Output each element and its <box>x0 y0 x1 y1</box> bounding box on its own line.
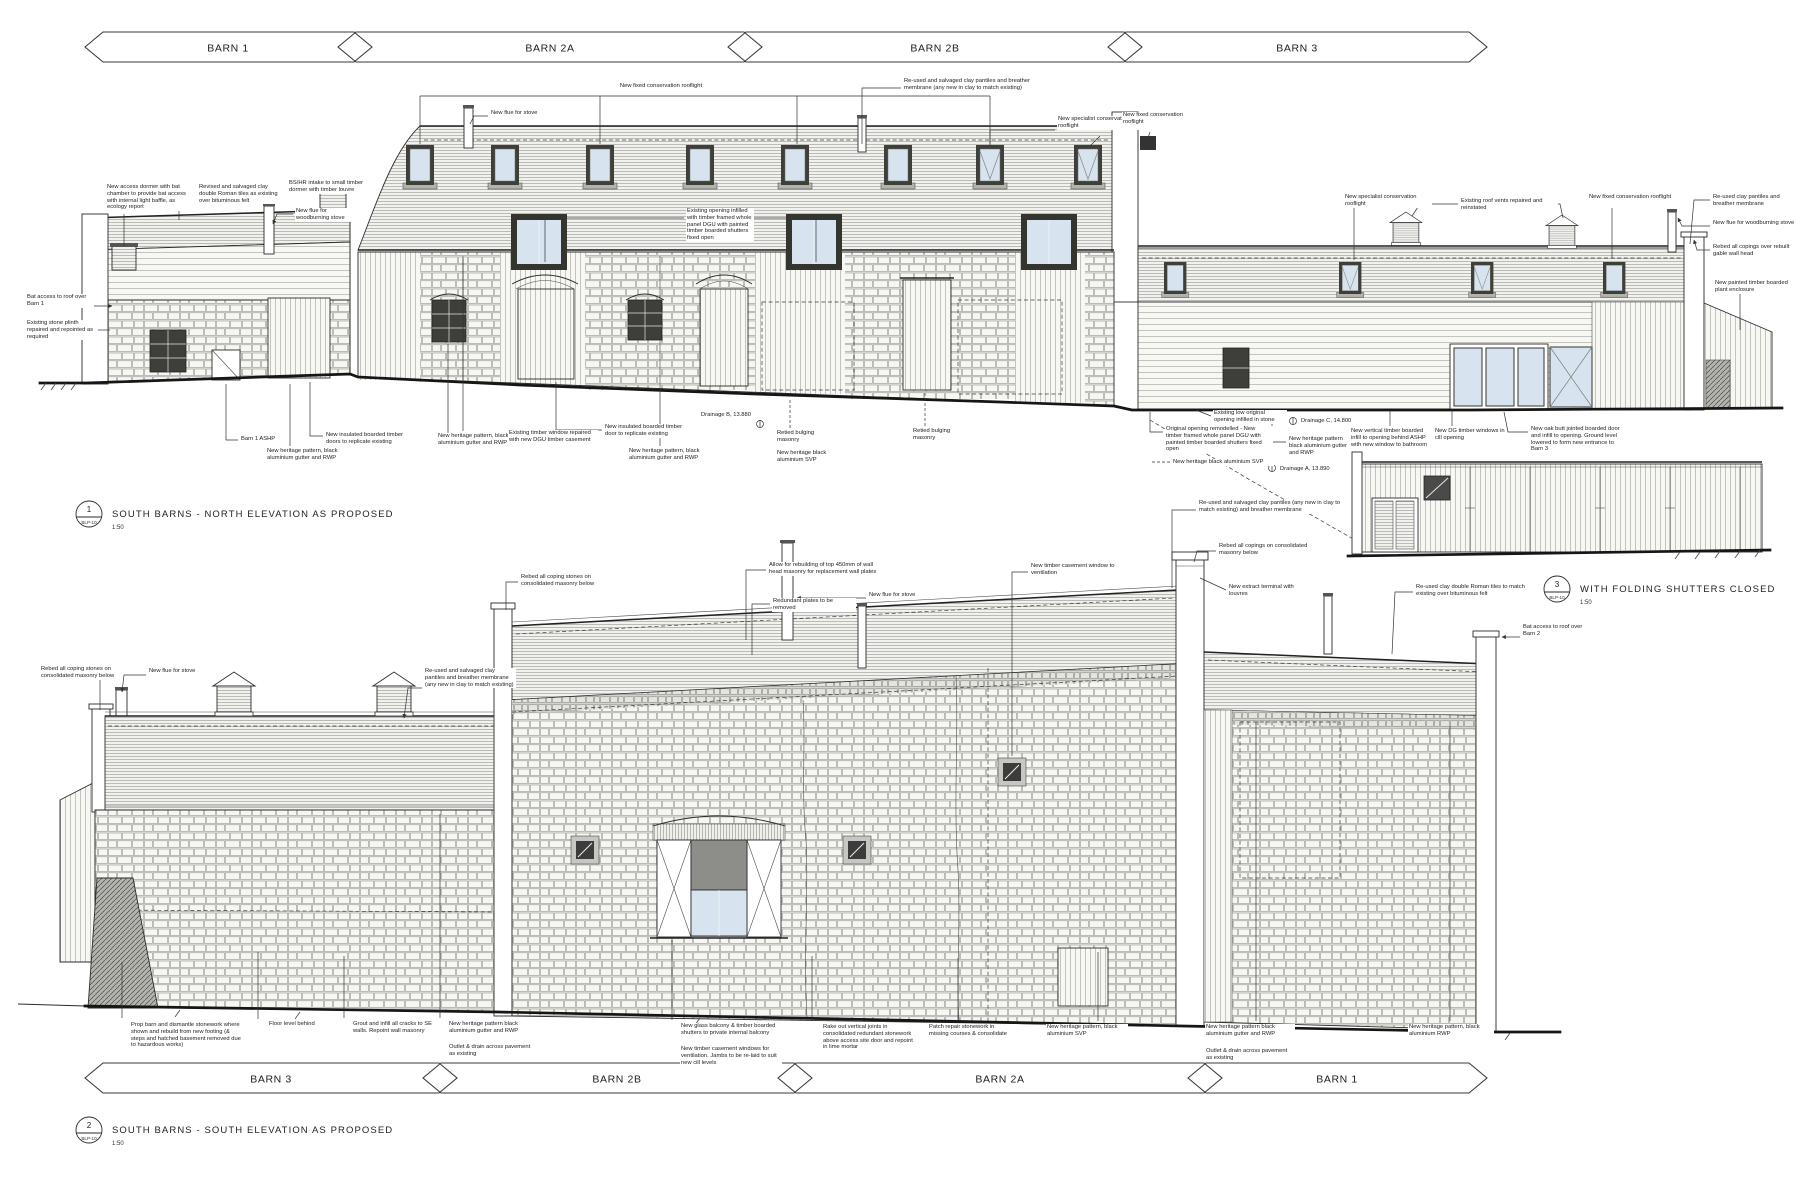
annotation-label: Re-used and salvaged clay pantiles and b… <box>424 668 516 688</box>
annotation-label: New heritage black aluminium SVP <box>776 450 848 464</box>
annotation-label: New heritage pattern, black aluminium gu… <box>266 448 362 462</box>
annotation-label: New DG timber windows in cill opening <box>1434 428 1506 442</box>
annotation-label: Rebed all coping stones on consolidated … <box>520 574 618 588</box>
annotation-label: New insulated boarded timber doors to re… <box>325 432 411 446</box>
annotation-label: New oak butt jointed boarded door and in… <box>1530 426 1628 453</box>
annotation-label: BS/HR intake to small timber dormer with… <box>288 180 370 194</box>
annotation-label: Prop barn and dismantle stonework where … <box>130 1022 244 1049</box>
annotation-label: New fixed conservation rooflight <box>1122 112 1202 126</box>
annotation-label: New heritage pattern, black aluminium RW… <box>1408 1024 1494 1038</box>
annotation-label: Rake out vertical joints in consolidated… <box>822 1024 916 1051</box>
annotation-label: New heritage pattern black aluminium gut… <box>448 1021 538 1035</box>
annotation-label: Re-used clay pantiles and breather membr… <box>1712 194 1796 208</box>
annotation-label: Bat access to roof over Barn 1 <box>26 294 94 308</box>
annotation-label: New heritage pattern black aluminium gut… <box>1288 436 1350 456</box>
annotation-label: Rebed all copings on consolidated masonr… <box>1218 543 1315 557</box>
annotation-label: Re-used and salvaged clay pantiles and b… <box>903 78 1060 92</box>
annotation-label: New painted timber boarded plant enclosu… <box>1714 280 1798 294</box>
annotation-label: Rebed all coping stones on consolidated … <box>40 666 116 680</box>
annotation-label: Existing low original opening infilled i… <box>1213 410 1287 424</box>
annotation-label: Bat access to roof over Barn 2 <box>1522 624 1588 638</box>
annotation-label: Re-used clay double Roman tiles to match… <box>1415 584 1529 598</box>
annotation-label: Outlet & drain across pavement as existi… <box>448 1044 538 1058</box>
annotation-label: New vertical timber boarded infill to op… <box>1350 428 1432 448</box>
annotation-label: Existing opening infilled with timber fr… <box>686 208 754 242</box>
annotation-label: New flue for stove <box>490 110 548 117</box>
annotation-label: New heritage black aluminium SVP <box>1172 459 1274 466</box>
annotation-label: New flue for woodburning stove <box>1712 220 1796 227</box>
annotation-label: Allow for rebuilding of top 450mm of wal… <box>768 562 882 576</box>
annotation-label: Re-used and salvaged clay pantiles (any … <box>1198 500 1350 514</box>
annotation-label: Drainage A, 13.890 <box>1279 466 1351 473</box>
annotation-layer: Bat access to roof over Barn 1New access… <box>0 0 1800 1199</box>
annotation-label: New insulated boarded timber door to rep… <box>604 424 692 438</box>
annotation-label: Retied bulging masonry <box>776 430 834 444</box>
annotation-label: New fixed conservation rooflight <box>1588 194 1674 201</box>
annotation-label: Rebed all copings over rebuilt gable wal… <box>1712 244 1796 258</box>
annotation-label: Drainage B, 13.880 <box>700 412 772 419</box>
annotation-label: New fixed conservation rooflight <box>565 83 757 90</box>
annotation-label: Redundant plates to be removed <box>772 598 856 612</box>
annotation-label: Existing stone plinth repaired and repoi… <box>26 320 98 340</box>
annotation-label: Barn 1 ASHP <box>240 436 288 443</box>
annotation-label: New timber casement window to ventilatio… <box>1030 563 1124 577</box>
annotation-label: Outlet & drain across pavement as existi… <box>1205 1048 1295 1062</box>
annotation-label: New flue for woodburning stove <box>295 208 359 222</box>
annotation-label: New heritage pattern, black aluminium SV… <box>1046 1024 1128 1038</box>
annotation-label: Retied bulging masonry <box>912 428 970 442</box>
annotation-label: New specialist conservation rooflight <box>1344 194 1432 208</box>
annotation-label: Grout and infill all cracks to SE walls.… <box>352 1021 440 1035</box>
annotation-label: New timber casement windows for ventilat… <box>680 1046 782 1066</box>
annotation-label: New flue for stove <box>868 592 928 599</box>
drawing-sheet: BARN 1 BARN 2A BARN 2B BARN 3 <box>0 0 1800 1199</box>
annotation-label: New flue for stove <box>148 668 204 675</box>
annotation-label: Floor level behind <box>268 1021 332 1028</box>
annotation-label: Revised and salvaged clay double Roman t… <box>198 184 284 204</box>
annotation-label: Patch repair stonework in missing course… <box>928 1024 1016 1038</box>
annotation-label: Original opening remodelled - New timber… <box>1165 426 1273 453</box>
annotation-label: New heritage pattern black aluminium gut… <box>1205 1024 1295 1038</box>
annotation-label: New heritage pattern, black aluminium gu… <box>628 448 724 462</box>
annotation-label: Existing roof vents repaired and reinsta… <box>1460 198 1558 212</box>
annotation-label: New extract terminal with louvres <box>1228 584 1310 598</box>
annotation-label: Existing timber window repaired with new… <box>508 430 598 444</box>
annotation-label: New access dormer with bat chamber to pr… <box>106 184 196 211</box>
annotation-label: Drainage C, 14.800 <box>1300 418 1372 425</box>
annotation-label: New glass balcony & timber boarded shutt… <box>680 1023 782 1037</box>
